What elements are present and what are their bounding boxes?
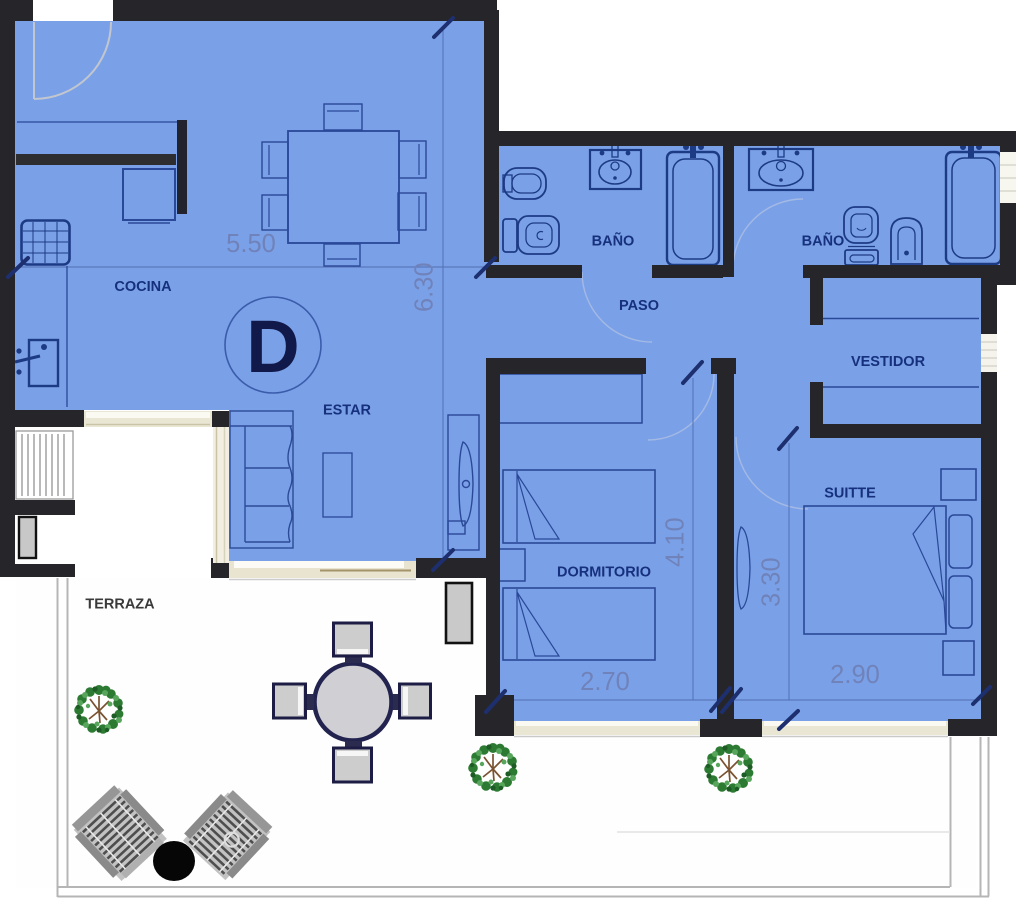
svg-text:3.30: 3.30 [758, 557, 786, 607]
svg-text:2.90: 2.90 [830, 661, 880, 689]
svg-text:SUITTE: SUITTE [824, 486, 876, 502]
svg-text:DORMITORIO: DORMITORIO [557, 565, 651, 581]
svg-text:2.70: 2.70 [580, 668, 630, 696]
svg-text:TERRAZA: TERRAZA [85, 597, 155, 613]
svg-text:BAÑO: BAÑO [802, 232, 845, 250]
svg-text:COCINA: COCINA [114, 279, 172, 295]
svg-text:D: D [246, 305, 299, 388]
svg-text:ESTAR: ESTAR [323, 403, 372, 419]
svg-text:6.30: 6.30 [411, 262, 439, 312]
svg-text:BAÑO: BAÑO [592, 232, 635, 250]
svg-text:VESTIDOR: VESTIDOR [851, 354, 926, 370]
svg-text:PASO: PASO [619, 298, 659, 314]
svg-text:5.50: 5.50 [226, 230, 276, 258]
svg-text:4.10: 4.10 [662, 517, 690, 567]
